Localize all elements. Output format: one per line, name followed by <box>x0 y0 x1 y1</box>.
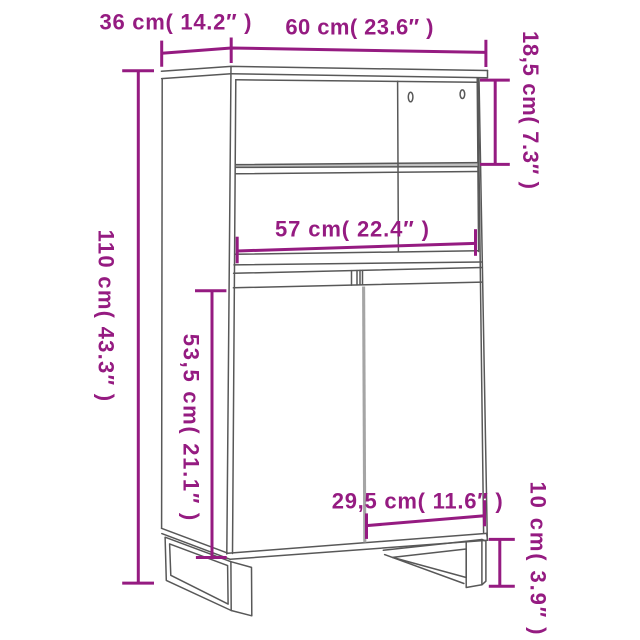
svg-text:36 cm( 14.2″ ): 36 cm( 14.2″ ) <box>100 9 252 34</box>
svg-text:18,5 cm( 7.3″ ): 18,5 cm( 7.3″ ) <box>518 31 543 189</box>
svg-text:29,5 cm( 11.6″ ): 29,5 cm( 11.6″ ) <box>332 488 503 513</box>
svg-text:10 cm( 3.9″ ): 10 cm( 3.9″ ) <box>526 482 551 635</box>
svg-text:57 cm( 22.4″ ): 57 cm( 22.4″ ) <box>275 217 429 242</box>
svg-text:110 cm( 43.3″ ): 110 cm( 43.3″ ) <box>94 230 119 402</box>
svg-text:60 cm( 23.6″ ): 60 cm( 23.6″ ) <box>285 15 433 40</box>
svg-text:53,5 cm( 21.1″ ): 53,5 cm( 21.1″ ) <box>179 334 204 520</box>
